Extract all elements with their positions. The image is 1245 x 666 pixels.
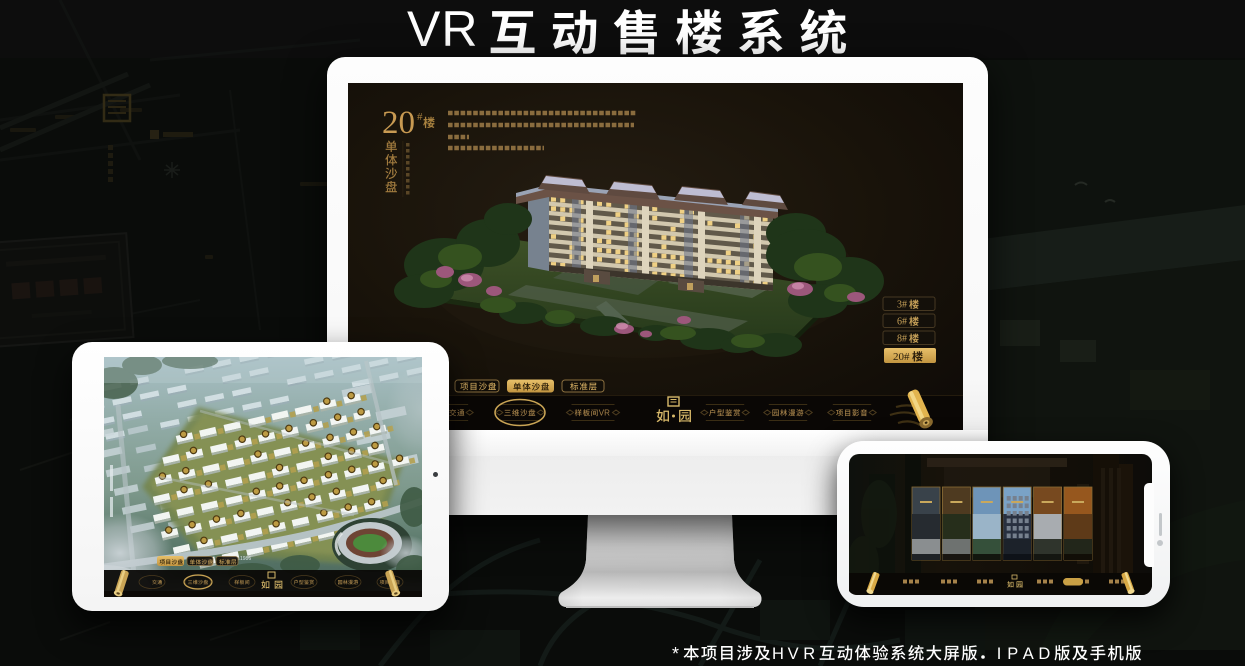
svg-text:D: D bbox=[1038, 645, 1050, 663]
svg-text:20: 20 bbox=[382, 105, 415, 141]
svg-text:I: I bbox=[997, 645, 1002, 663]
svg-text:#: # bbox=[417, 111, 423, 123]
svg-text:A: A bbox=[1023, 645, 1034, 663]
svg-text:1986: 1986 bbox=[240, 556, 251, 562]
svg-text:3#: 3# bbox=[897, 300, 907, 311]
svg-text:8#: 8# bbox=[897, 334, 907, 345]
svg-text:VR: VR bbox=[407, 1, 478, 57]
svg-text:R: R bbox=[803, 645, 815, 663]
svg-text:P: P bbox=[1007, 645, 1018, 663]
svg-text:20#: 20# bbox=[893, 351, 910, 363]
svg-text:H: H bbox=[772, 645, 784, 663]
svg-text:*: * bbox=[672, 644, 679, 664]
svg-text:V: V bbox=[788, 645, 799, 663]
svg-text:VR: VR bbox=[599, 409, 610, 418]
svg-text:6#: 6# bbox=[897, 317, 907, 328]
